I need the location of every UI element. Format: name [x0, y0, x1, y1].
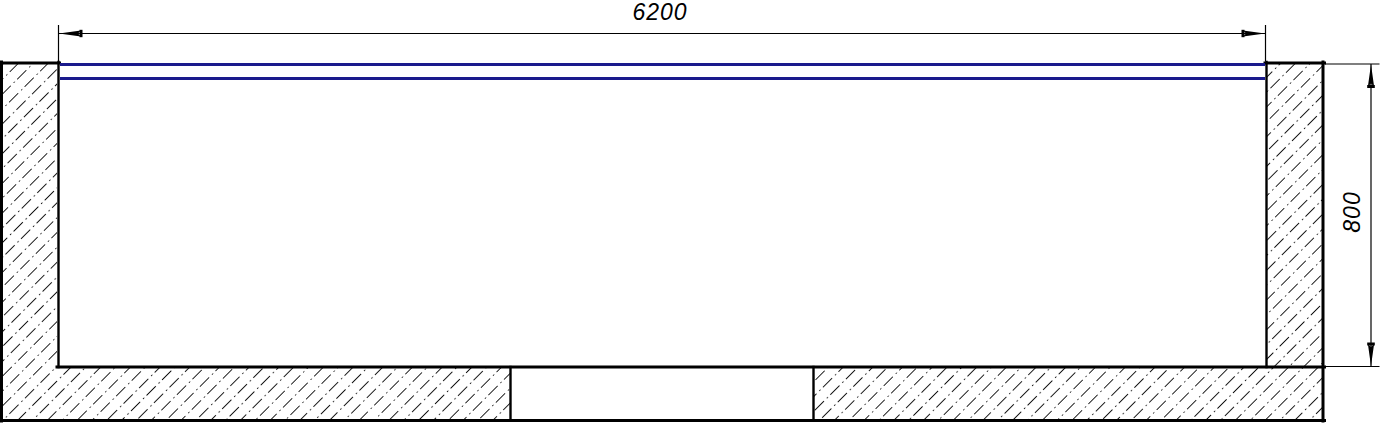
concrete-structure [0, 62, 1325, 421]
width-dim-arrow-left [59, 31, 81, 37]
left-wall-hatch [2, 64, 57, 367]
width-dim-arrow-left-tail [80, 30, 83, 37]
floor-slab-left-hatch [2, 367, 510, 419]
drawing-sheet: 6200 800 [0, 0, 1380, 424]
height-dim-arrow-up-tail [1367, 85, 1375, 88]
water-level-lines [60, 65, 1265, 79]
width-dim-arrow-right [1243, 31, 1265, 37]
width-dimension: 6200 [59, 0, 1266, 62]
height-dim-arrow-down [1368, 344, 1374, 366]
right-wall-hatch [1267, 64, 1322, 367]
height-dim-arrow-up [1368, 65, 1374, 87]
floor-slab-right-hatch [813, 367, 1322, 419]
height-dimension: 800 [1325, 64, 1380, 367]
width-dim-arrow-right-tail [1242, 30, 1245, 37]
technical-drawing-canvas: 6200 800 [0, 0, 1380, 424]
height-dimension-label: 800 [1339, 191, 1365, 232]
width-dimension-label: 6200 [632, 0, 687, 25]
height-dim-arrow-down-tail [1367, 343, 1375, 346]
